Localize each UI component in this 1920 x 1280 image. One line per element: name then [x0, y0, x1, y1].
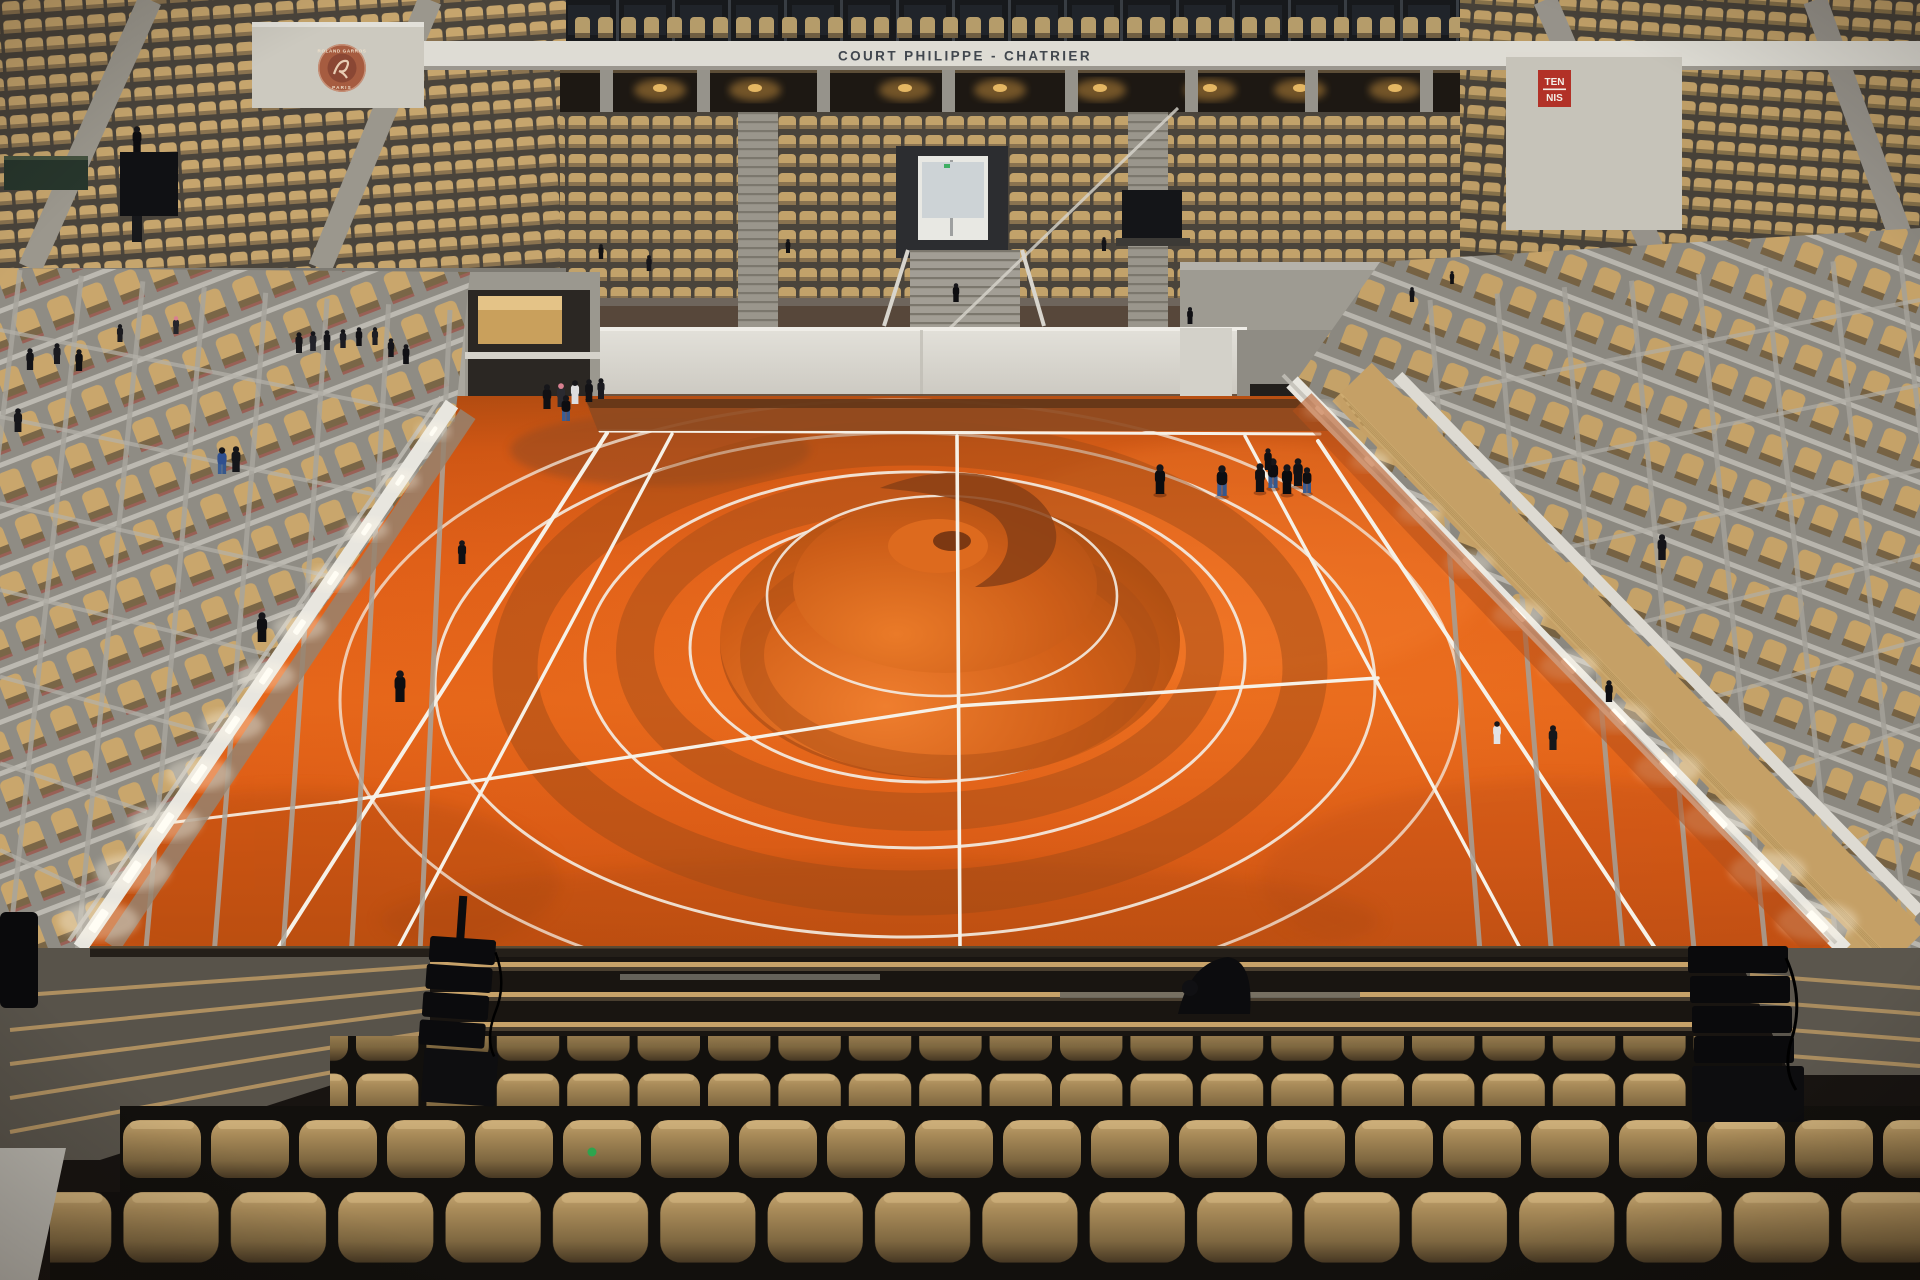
stadium-scene: COURT PHILIPPE - CHATRIER ROLAND GARROS …	[0, 0, 1920, 1280]
vignette	[0, 0, 1920, 1280]
stadium-photo: COURT PHILIPPE - CHATRIER ROLAND GARROS …	[0, 0, 1920, 1280]
